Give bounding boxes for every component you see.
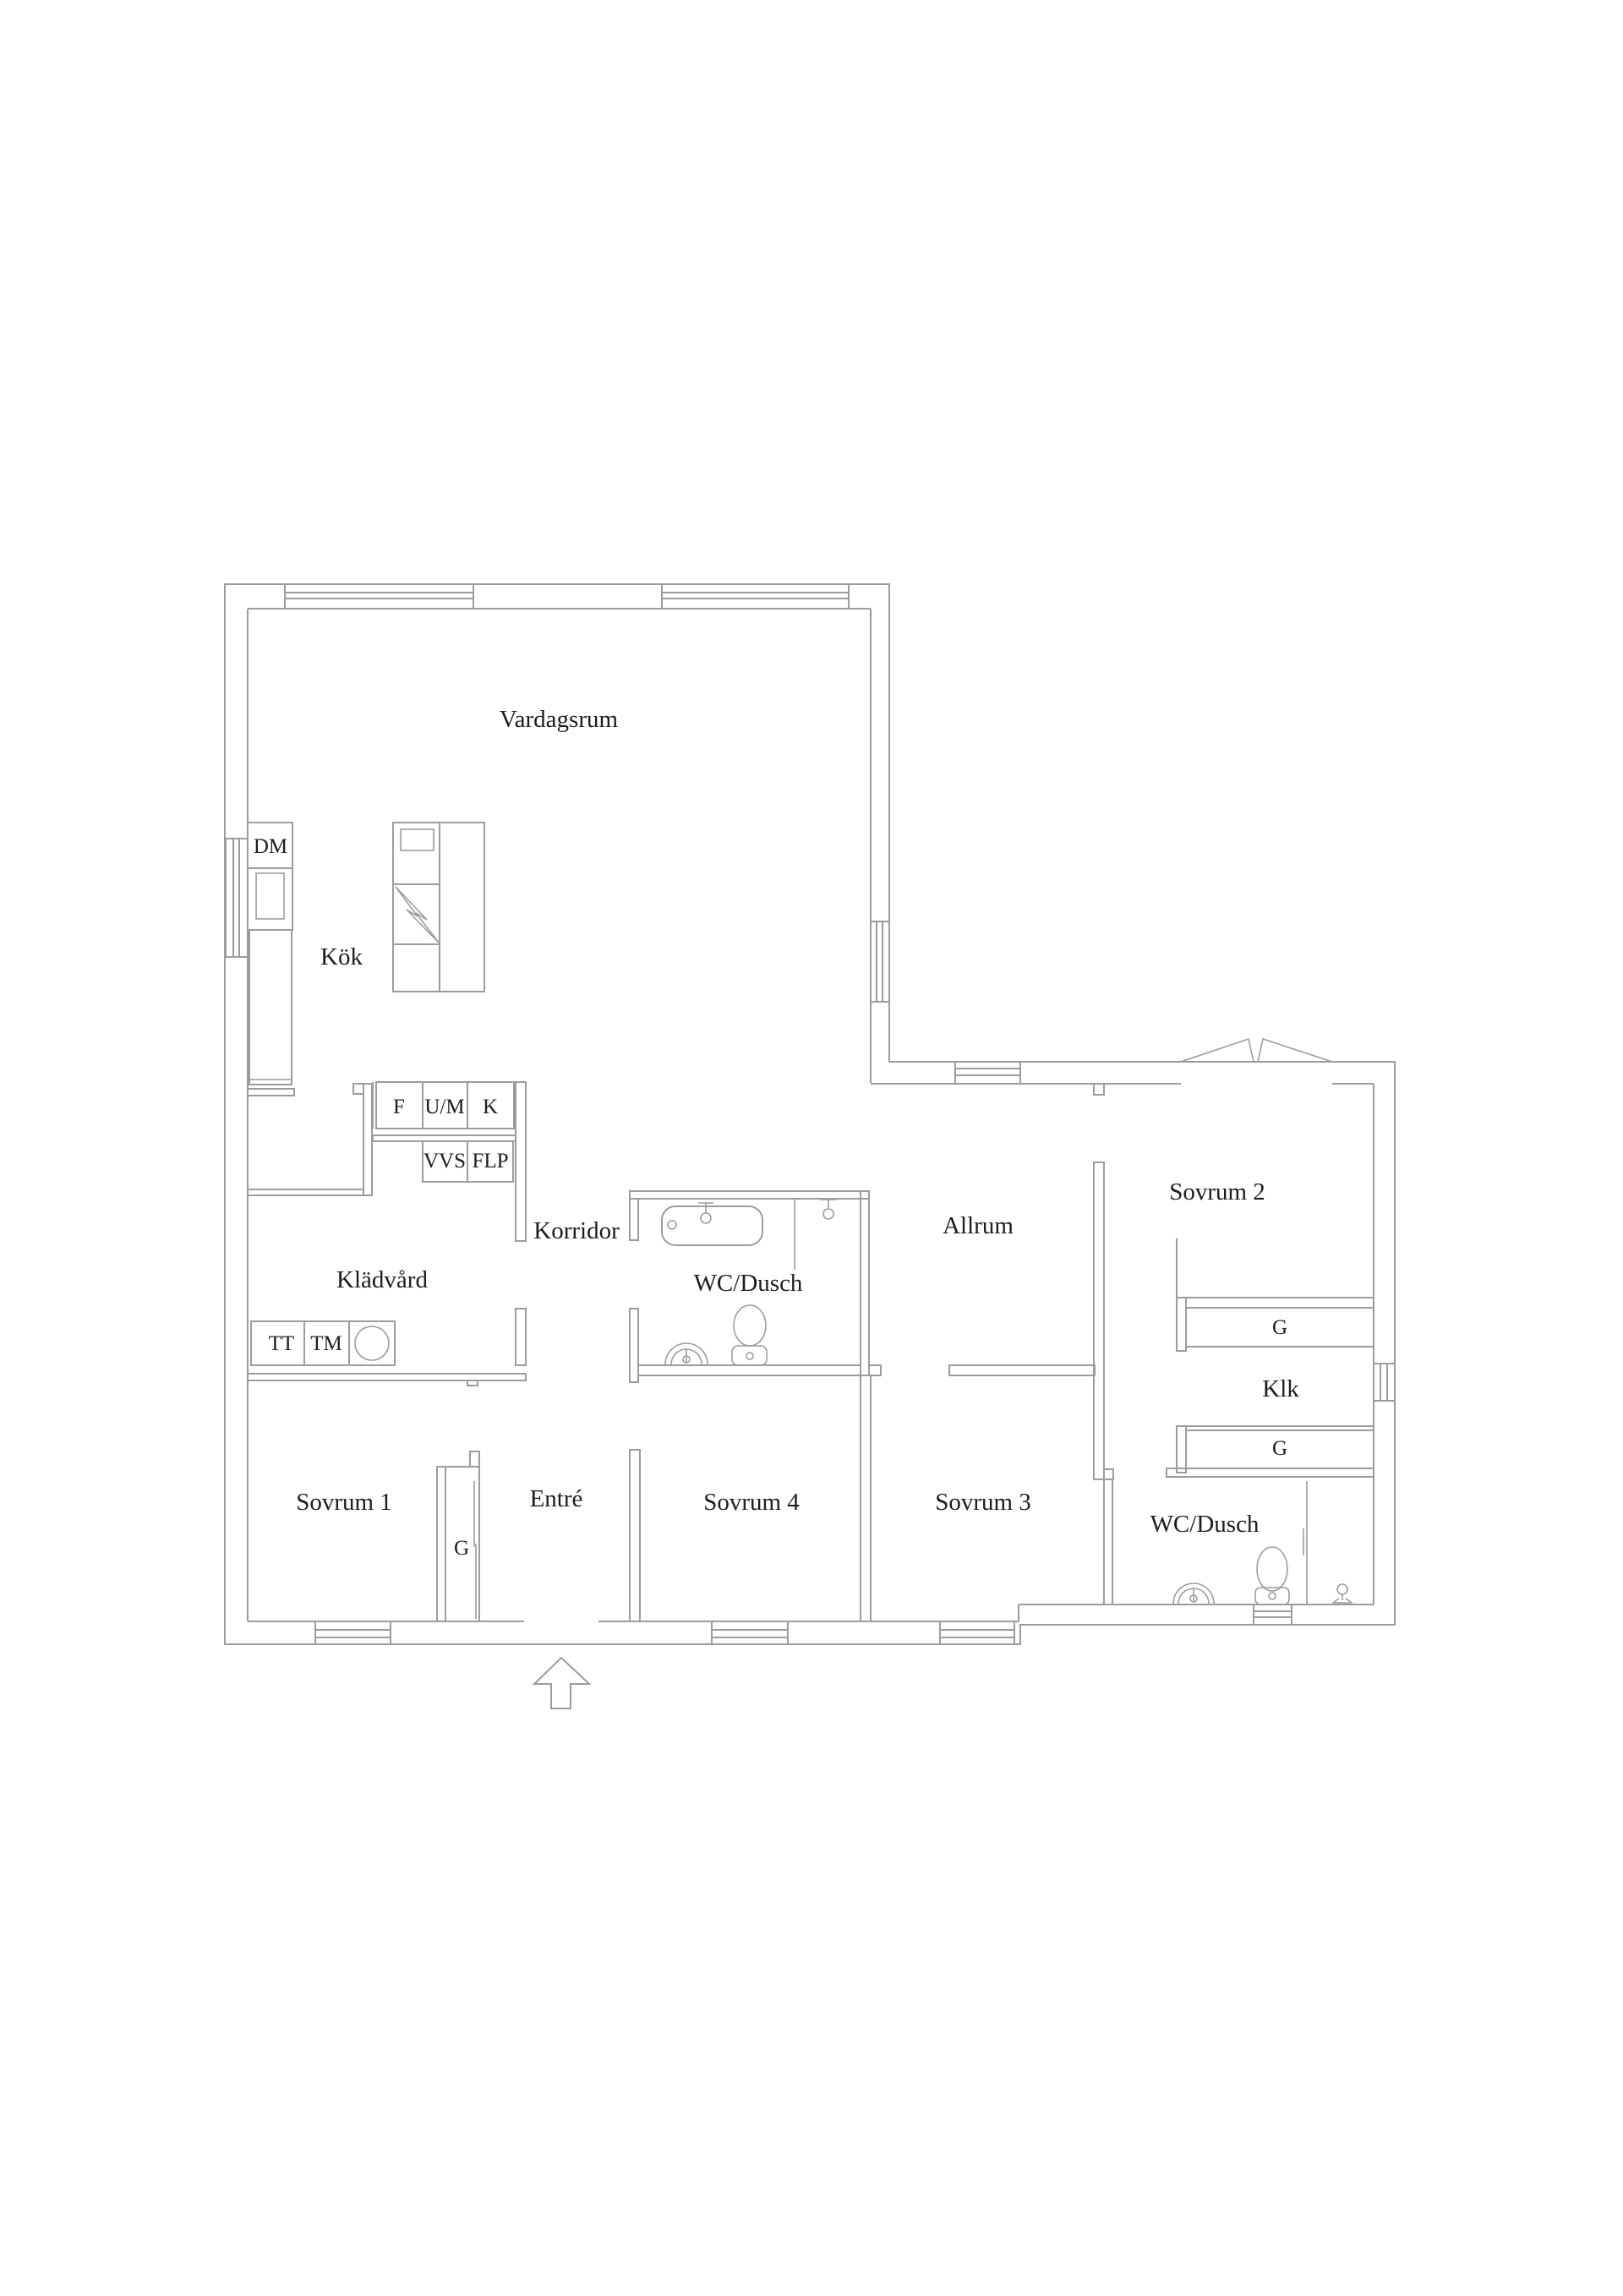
- bathtub: [662, 1206, 762, 1245]
- kitchen-fixtures: [248, 823, 484, 1085]
- labels: Vardagsrum Kök DM F U/M K VVS FLP Korrid…: [254, 706, 1299, 1560]
- window-top-right: [662, 584, 849, 609]
- room-label-sovrum3: Sovrum 3: [935, 1489, 1031, 1516]
- window-allrum-top: [955, 1062, 1020, 1084]
- room-label-sovrum2: Sovrum 2: [1169, 1178, 1265, 1205]
- wall-kladvard-bottom: [248, 1374, 526, 1380]
- room-label-wc-dusch-right: WC/Dusch: [1150, 1511, 1260, 1538]
- doors: [534, 1039, 1332, 1708]
- room-label-sovrum4: Sovrum 4: [703, 1489, 800, 1516]
- label-g-sovrum2: G: [1272, 1316, 1287, 1339]
- label-flp: FLP: [472, 1150, 508, 1173]
- room-label-wc-dusch-mid: WC/Dusch: [694, 1270, 803, 1297]
- toilet-mid: [732, 1305, 767, 1365]
- room-label-entre: Entré: [530, 1485, 583, 1512]
- wall-sovrum1-entre: [437, 1467, 445, 1621]
- label-tm: TM: [310, 1332, 342, 1355]
- kitchen-counter: [249, 930, 292, 1085]
- window-wc-right-bottom: [1254, 1604, 1292, 1625]
- floor-plan-page: Vardagsrum Kök DM F U/M K VVS FLP Korrid…: [0, 0, 1623, 2296]
- label-f: F: [393, 1096, 405, 1118]
- round-sink-mid: [665, 1343, 708, 1364]
- wall-wc-mid-right: [861, 1191, 869, 1375]
- room-label-korridor: Korridor: [533, 1217, 620, 1244]
- wall-allrum-sovrum3: [949, 1365, 1095, 1375]
- closet-g-klk-cap: [1177, 1426, 1186, 1473]
- window-sovrum1-bottom: [315, 1621, 391, 1644]
- french-doors-symbol: [1181, 1039, 1332, 1062]
- wall-pantry-right: [363, 1084, 372, 1195]
- wall-wc-mid-bottom-notch: [869, 1365, 881, 1375]
- closet-g-sovrum2-cap: [1177, 1298, 1186, 1351]
- wall-sovrum1-entre-stub: [470, 1451, 479, 1467]
- wall-kladvard-right: [516, 1309, 526, 1365]
- closet-band: [373, 1135, 516, 1141]
- shower-screen-right: [1303, 1481, 1307, 1604]
- kitchen-island-hob: [401, 829, 434, 850]
- window-livingroom-right: [871, 921, 889, 1002]
- window-sovrum4-bottom: [712, 1621, 788, 1644]
- wall-wc-mid-bottom: [638, 1365, 861, 1375]
- label-g-klk: G: [1272, 1437, 1287, 1460]
- room-label-kok: Kök: [320, 943, 363, 970]
- shower-head-faucet: [820, 1200, 837, 1219]
- fridge-box: [248, 868, 292, 930]
- interior-walls: [248, 1082, 1374, 1621]
- window-klk-right: [1374, 1364, 1395, 1401]
- label-um: U/M: [424, 1096, 464, 1118]
- label-vvs: VVS: [424, 1150, 466, 1173]
- room-label-allrum: Allrum: [943, 1212, 1014, 1239]
- label-k: K: [483, 1096, 498, 1118]
- label-g-entre: G: [454, 1537, 469, 1560]
- window-top-left: [285, 584, 473, 609]
- wall-wc-right-left: [1104, 1479, 1112, 1604]
- exterior-inner-livingroom-right: [871, 609, 889, 1083]
- wall-pantry-stub: [353, 1084, 363, 1094]
- wall-wc-mid-left-lower: [630, 1309, 638, 1382]
- wall-sovrum4-left: [630, 1450, 640, 1621]
- room-label-vardagsrum: Vardagsrum: [500, 706, 619, 733]
- entrance-arrow-symbol: [534, 1658, 589, 1708]
- bathtub-drain: [668, 1221, 676, 1229]
- bathroom-right-fixtures: [1173, 1481, 1352, 1604]
- exterior-inner-wing-bottom: [1019, 1604, 1374, 1621]
- floor-plan-svg: Vardagsrum Kök DM F U/M K VVS FLP Korrid…: [0, 0, 1623, 2296]
- label-tt: TT: [269, 1332, 295, 1355]
- wall-klk-notch: [1104, 1469, 1113, 1479]
- closet-g-entre-sliding-door: [474, 1481, 476, 1619]
- room-label-kladvard: Klädvård: [336, 1266, 428, 1293]
- toilet-right: [1255, 1547, 1289, 1604]
- stove-lightning-symbol: [396, 887, 439, 943]
- window-sovrum3-bottom: [940, 1621, 1014, 1644]
- wall-allrum-sovrum2-stub: [1094, 1084, 1104, 1095]
- wall-closetblock-right: [516, 1082, 526, 1241]
- room-label-klk: Klk: [1262, 1375, 1299, 1402]
- room-label-sovrum1: Sovrum 1: [296, 1489, 392, 1516]
- label-dm: DM: [254, 835, 287, 858]
- wall-kladvard-bottom-stub: [467, 1380, 478, 1386]
- round-sink-right: [1173, 1583, 1214, 1604]
- wall-pantry-top: [248, 1089, 294, 1096]
- wall-wc-mid-left-upper: [630, 1199, 638, 1240]
- fridge-inner: [256, 873, 284, 919]
- floor-drain: [1332, 1584, 1352, 1603]
- wall-allrum-sovrum2: [1094, 1162, 1104, 1479]
- window-left-kitchen: [226, 839, 248, 957]
- wall-klk-bottom: [1167, 1468, 1374, 1477]
- wall-wc-mid-top: [630, 1191, 869, 1199]
- wall-below-kitchen: [248, 1189, 363, 1195]
- closets: [251, 1082, 1374, 1621]
- laundry-sink-circle: [355, 1326, 389, 1360]
- wall-sovrum4-sovrum3: [861, 1375, 871, 1621]
